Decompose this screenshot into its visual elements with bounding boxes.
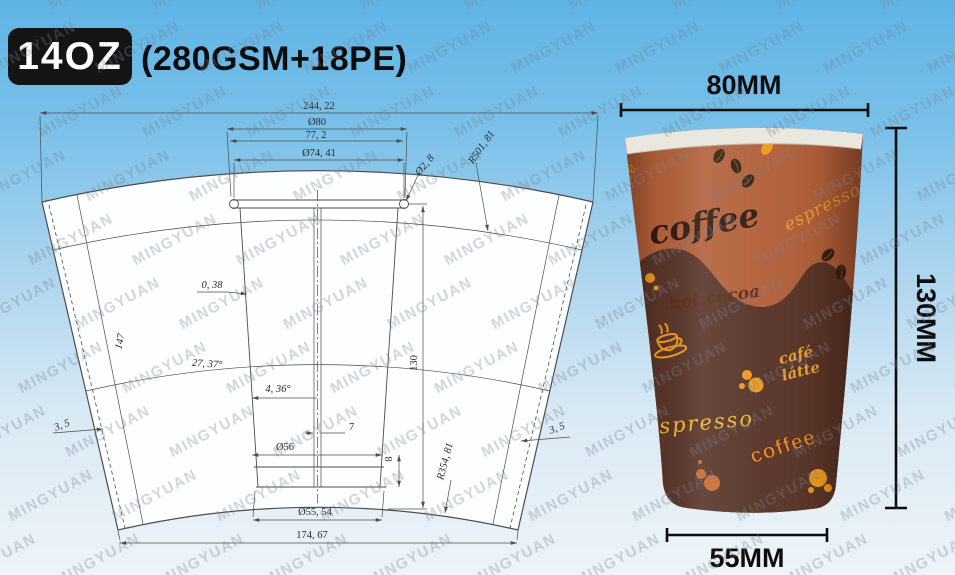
dim-cup-top-width: 80MM — [706, 70, 781, 100]
size-badge: 14OZ — [8, 28, 132, 85]
dim-seam-right: 3, 5 — [547, 421, 567, 437]
cup-photo: ffee coffee espresso hot cocoa — [595, 60, 955, 575]
dim-bottom-height: 8 — [384, 456, 395, 461]
cup-blank-drawing: 244, 22 Ø80 77, 2 Ø74, 41 Ø2, 8 R501, 81… — [15, 95, 615, 573]
dim-seam-width: 7 — [349, 422, 354, 433]
dim-rim-mid: 77, 2 — [306, 130, 327, 141]
dim-wall-thickness: 0, 38 — [202, 280, 224, 291]
cup-body: ffee coffee espresso hot cocoa — [612, 128, 870, 518]
dim-cup-bottom-width: 55MM — [709, 543, 784, 573]
dim-rim-outer-dia: Ø80 — [308, 117, 326, 128]
dim-cup-height: 130MM — [911, 273, 941, 363]
dim-top-arc-radius: R501, 81 — [466, 129, 497, 167]
material-spec-label: (280GSM+18PE) — [141, 37, 407, 81]
dim-rim-inner-dia: Ø74, 41 — [302, 148, 336, 159]
dim-bottom-outer-dia: Ø55, 54 — [298, 507, 333, 518]
dim-bottom-dia: Ø56 — [276, 442, 294, 453]
dim-taper-angle: 4, 36° — [265, 384, 291, 395]
dim-cup-height: 130 — [409, 355, 420, 371]
dim-fan-bottom-width: 174, 67 — [296, 530, 328, 541]
product-spec-sheet: MINGYUANMINGYUANMINGYUANMINGYUANMINGYUAN… — [0, 0, 955, 575]
size-badge-label: 14OZ — [17, 35, 123, 79]
dim-fan-angle: 27, 37° — [192, 358, 224, 371]
dim-fan-top-width: 244, 22 — [303, 101, 335, 112]
